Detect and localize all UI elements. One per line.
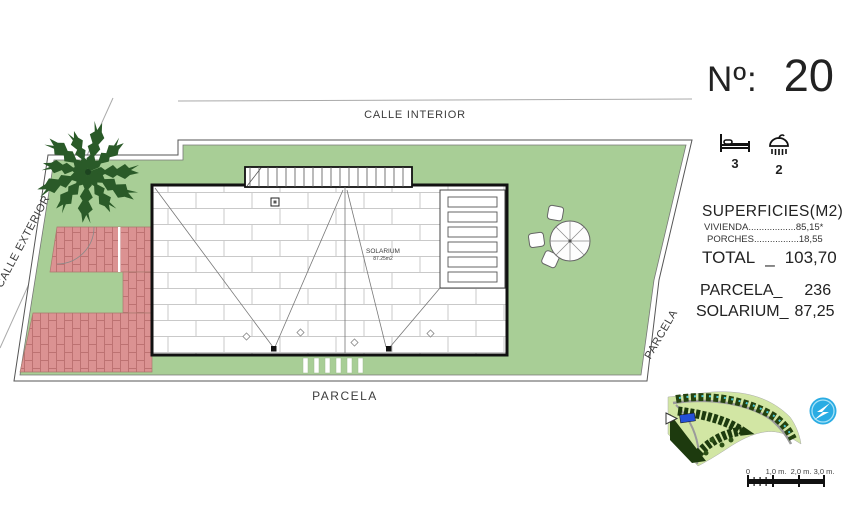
surface-value: 85,15* [796, 222, 823, 233]
total-row: TOTAL_103,70 [702, 248, 837, 268]
plot-number-value: 20 [784, 50, 834, 102]
surface-row-porches: PORCHES.................18,55 [707, 234, 823, 245]
solarium-value: 87,25 [794, 303, 834, 320]
solarium-area-label: 87.25m2 [373, 256, 393, 262]
total-value: 103,70 [785, 248, 837, 267]
total-separator: _ [765, 248, 774, 267]
scale-label-3: 3,0 m. [814, 467, 835, 476]
street-top-label: CALLE INTERIOR [364, 109, 466, 121]
chimney-icon [271, 198, 279, 206]
brand-logo-icon [810, 398, 837, 425]
bedrooms-count: 3 [731, 156, 738, 171]
scale-bar: 0 1,0 m. 2,0 m. 3,0 m. [746, 467, 835, 487]
pergola [440, 190, 505, 288]
staircase [245, 167, 412, 187]
parcela-bottom-label: PARCELA [312, 389, 378, 403]
solarium-row: SOLARIUM_87,25 [696, 303, 835, 321]
bathrooms-count: 2 [775, 162, 782, 177]
total-label: TOTAL [702, 248, 755, 267]
surface-value: 18,55 [799, 234, 823, 245]
plot-number-label: Nº: [707, 60, 758, 100]
patio-joint [118, 227, 121, 272]
surface-row-vivienda: VIVIENDA..................85,15* [704, 222, 823, 233]
leader-dots: ................. [754, 234, 799, 245]
highlighted-lot [680, 413, 696, 423]
solarium-label: SOLARIUM [366, 248, 400, 255]
surface-label: PORCHES [707, 234, 754, 245]
parcela-row: PARCELA_236 [700, 282, 831, 300]
surface-label: VIVIENDA [704, 222, 748, 233]
building: SOLARIUM 87.25m2 [152, 167, 507, 355]
bathrooms-feature: 2 [767, 132, 791, 177]
scale-label-0: 0 [746, 467, 750, 476]
solarium-label: SOLARIUM_ [696, 303, 788, 320]
scale-label-2: 2,0 m. [791, 467, 812, 476]
bedrooms-feature: 3 [719, 132, 751, 177]
plot-number-row: Nº: 20 [707, 50, 834, 102]
scale-label-1: 1,0 m. [766, 467, 787, 476]
shower-icon [767, 132, 791, 160]
plan-sheet: SOLARIUM 87.25m2 [0, 0, 850, 530]
leader-dots: .................. [748, 222, 796, 233]
bed-icon [719, 132, 751, 154]
parcela-label: PARCELA_ [700, 282, 782, 299]
surfaces-heading: SUPERFICIES(M2) [702, 203, 843, 221]
location-minimap [666, 392, 837, 466]
features-row: 3 2 [719, 132, 791, 177]
parcela-value: 236 [804, 282, 831, 299]
